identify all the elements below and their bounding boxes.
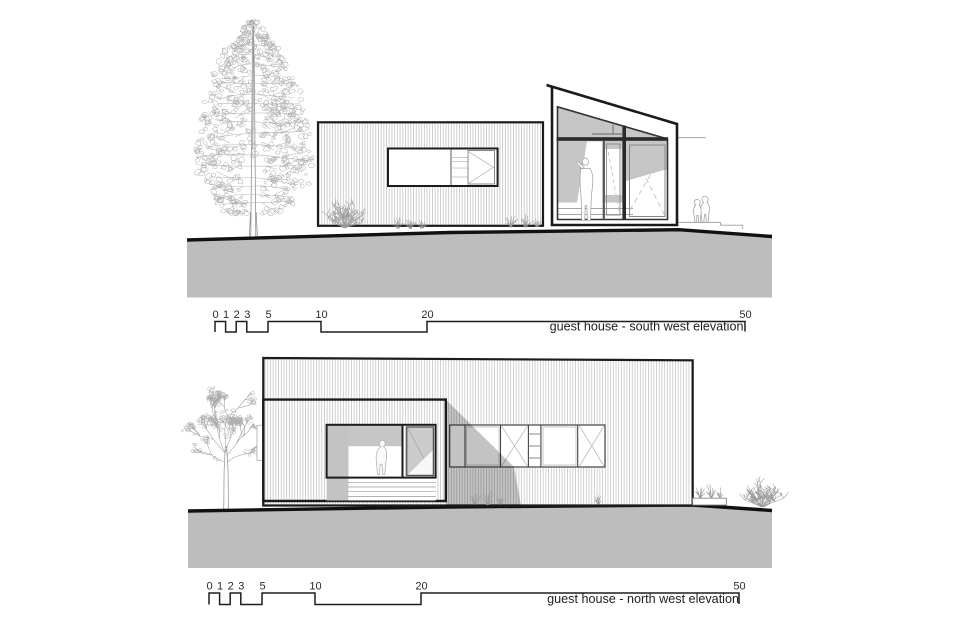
svg-text:guest house - north west eleva: guest house - north west elevation bbox=[547, 592, 739, 606]
svg-text:0: 0 bbox=[212, 309, 218, 321]
svg-text:1: 1 bbox=[217, 581, 223, 593]
svg-text:0: 0 bbox=[206, 581, 212, 593]
svg-text:1: 1 bbox=[223, 309, 229, 321]
svg-text:5: 5 bbox=[259, 581, 265, 593]
svg-text:3: 3 bbox=[238, 581, 244, 593]
svg-text:10: 10 bbox=[315, 309, 327, 321]
svg-text:2: 2 bbox=[234, 309, 240, 321]
svg-text:50: 50 bbox=[733, 581, 745, 593]
svg-text:10: 10 bbox=[309, 581, 321, 593]
svg-text:20: 20 bbox=[415, 581, 427, 593]
svg-text:guest house - south west eleva: guest house - south west elevation bbox=[550, 320, 744, 334]
svg-text:2: 2 bbox=[228, 581, 234, 593]
svg-text:20: 20 bbox=[421, 309, 433, 321]
svg-text:5: 5 bbox=[265, 309, 271, 321]
svg-text:3: 3 bbox=[244, 309, 250, 321]
